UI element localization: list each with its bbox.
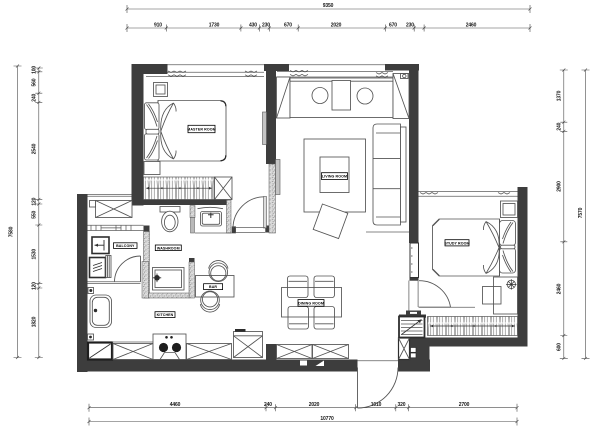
svg-text:560: 560 [32,78,38,86]
svg-text:120: 120 [32,282,38,290]
svg-text:2460: 2460 [557,283,563,294]
svg-text:240: 240 [264,402,272,408]
svg-text:7580: 7580 [9,226,15,237]
svg-text:2020: 2020 [331,23,342,29]
svg-text:2900: 2900 [557,181,563,192]
svg-text:2700: 2700 [459,402,470,408]
svg-text:9350: 9350 [323,3,334,9]
svg-text:910: 910 [154,23,162,29]
svg-text:320: 320 [398,402,406,408]
svg-text:WASHROOM: WASHROOM [157,246,180,250]
svg-text:1010: 1010 [371,402,382,408]
svg-text:1530: 1530 [32,249,38,260]
svg-text:10770: 10770 [320,416,334,422]
svg-text:550: 550 [32,210,38,218]
svg-text:120: 120 [32,197,38,205]
svg-text:1730: 1730 [209,23,220,29]
svg-text:1820: 1820 [32,316,38,327]
svg-text:7570: 7570 [578,207,584,218]
svg-text:KITCHEN: KITCHEN [157,313,174,317]
svg-text:230: 230 [406,23,414,29]
svg-text:670: 670 [389,23,397,29]
svg-text:600: 600 [557,343,563,351]
svg-text:1370: 1370 [557,90,563,101]
svg-text:2020: 2020 [309,402,320,408]
svg-text:BALCONY: BALCONY [116,244,135,248]
svg-text:4460: 4460 [170,402,181,408]
svg-text:240: 240 [32,93,38,101]
svg-text:240: 240 [557,122,563,130]
svg-text:430: 430 [249,23,257,29]
svg-text:MASTER ROOM: MASTER ROOM [187,128,215,132]
svg-text:LIVING ROOM: LIVING ROOM [322,175,347,179]
svg-text:100: 100 [32,66,38,74]
svg-text:2460: 2460 [466,23,477,29]
svg-text:2540: 2540 [32,143,38,154]
svg-text:670: 670 [284,23,292,29]
svg-text:230: 230 [262,23,270,29]
svg-text:STUDY ROOM: STUDY ROOM [444,241,469,245]
svg-text:DINING ROOM: DINING ROOM [298,302,324,306]
svg-text:BAR: BAR [209,285,217,289]
